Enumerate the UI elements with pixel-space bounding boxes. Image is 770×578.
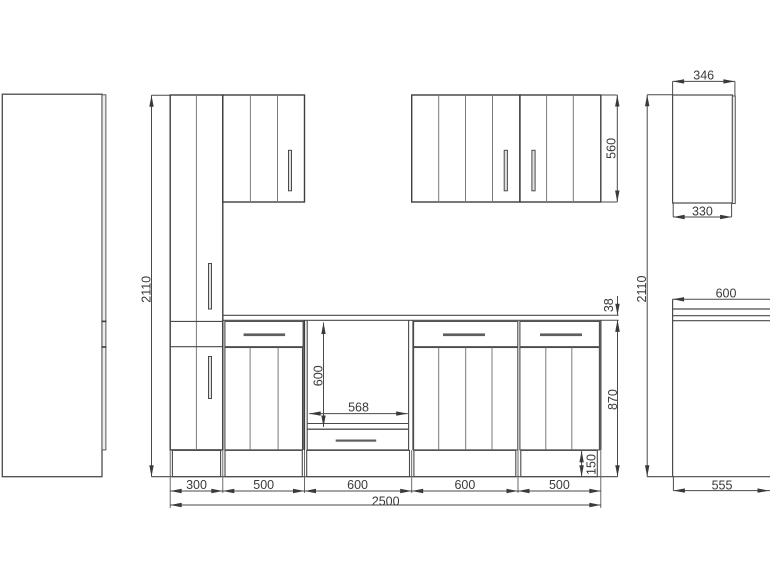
svg-text:2110: 2110 [635,276,649,303]
svg-text:346: 346 [693,69,714,83]
svg-text:555: 555 [712,479,733,493]
svg-text:600: 600 [716,287,737,301]
svg-text:330: 330 [692,204,713,218]
svg-text:150: 150 [584,454,598,475]
svg-text:500: 500 [549,478,570,492]
svg-text:568: 568 [348,401,369,415]
svg-text:500: 500 [253,478,274,492]
svg-text:38: 38 [602,298,616,312]
svg-text:870: 870 [606,389,620,410]
svg-text:2110: 2110 [140,276,154,303]
svg-text:600: 600 [347,478,368,492]
svg-text:2500: 2500 [372,494,400,508]
svg-text:560: 560 [604,138,618,159]
svg-text:300: 300 [186,478,207,492]
svg-text:600: 600 [312,365,326,386]
svg-text:600: 600 [454,478,475,492]
